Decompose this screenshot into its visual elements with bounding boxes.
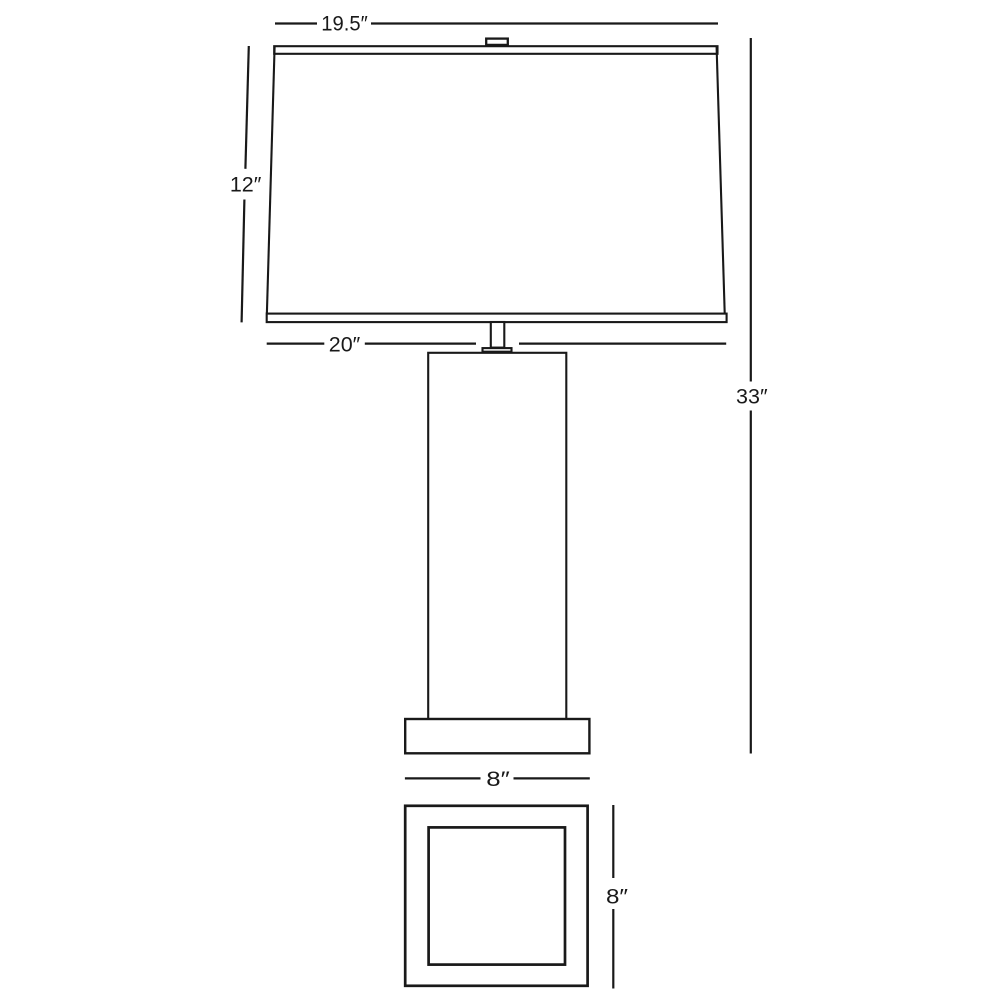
svg-text:19.5″: 19.5″ [321,12,368,36]
svg-text:8″: 8″ [606,885,628,909]
svg-text:20″: 20″ [329,333,361,357]
svg-text:12″: 12″ [230,173,262,197]
svg-text:33″: 33″ [736,385,768,409]
svg-text:8″: 8″ [486,767,510,791]
